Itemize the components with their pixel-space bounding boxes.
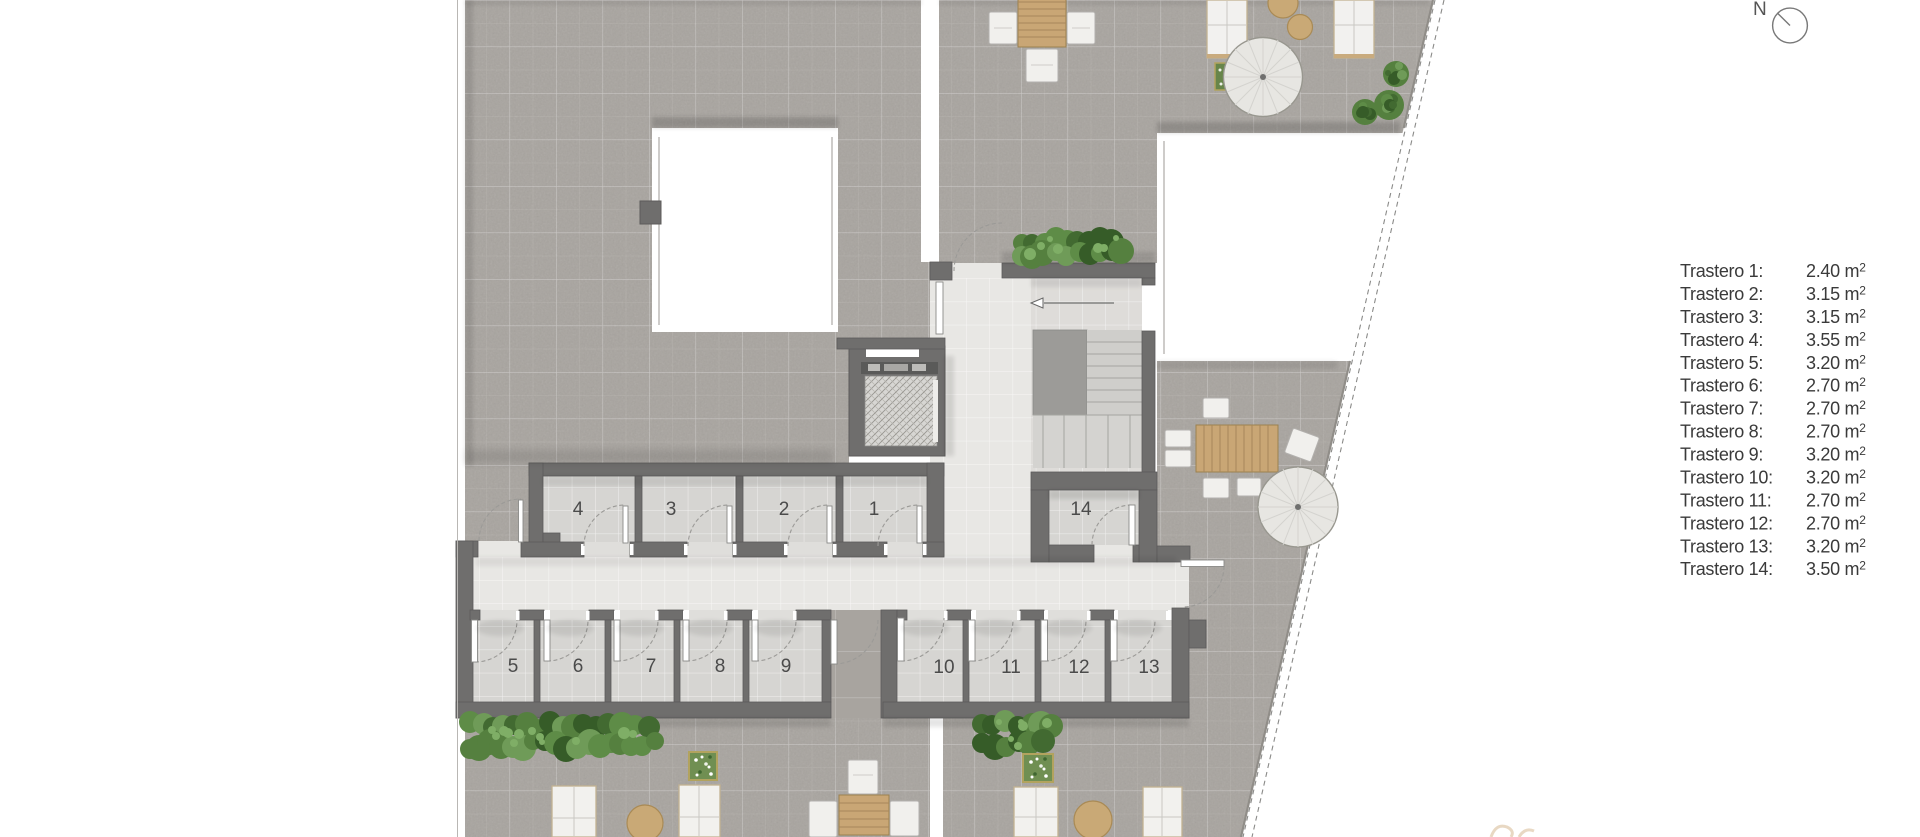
svg-text:2.40 m2: 2.40 m2 — [1806, 261, 1866, 282]
svg-text:12: 12 — [1068, 657, 1089, 678]
svg-text:Trastero 7:: Trastero 7: — [1680, 399, 1763, 419]
svg-text:7: 7 — [646, 656, 657, 677]
svg-text:5: 5 — [508, 656, 519, 677]
svg-text:Trastero 3:: Trastero 3: — [1680, 307, 1763, 327]
svg-text:3.20 m2: 3.20 m2 — [1806, 467, 1866, 488]
svg-text:3.15 m2: 3.15 m2 — [1806, 283, 1866, 304]
svg-text:2.70 m2: 2.70 m2 — [1806, 421, 1866, 442]
svg-text:Trastero 8:: Trastero 8: — [1680, 422, 1763, 442]
svg-text:Trastero 12:: Trastero 12: — [1680, 513, 1773, 533]
svg-text:N: N — [1753, 0, 1767, 20]
svg-text:Trastero 5:: Trastero 5: — [1680, 353, 1763, 373]
svg-text:3.50 m2: 3.50 m2 — [1806, 559, 1866, 580]
svg-text:3.20 m2: 3.20 m2 — [1806, 444, 1866, 465]
svg-text:Trastero 6:: Trastero 6: — [1680, 376, 1763, 396]
svg-text:3.15 m2: 3.15 m2 — [1806, 306, 1866, 327]
svg-text:1: 1 — [869, 499, 880, 520]
svg-text:Trastero 13:: Trastero 13: — [1680, 536, 1773, 556]
svg-text:3.20 m2: 3.20 m2 — [1806, 536, 1866, 557]
svg-text:Trastero 9:: Trastero 9: — [1680, 445, 1763, 465]
svg-text:11: 11 — [1001, 657, 1021, 678]
svg-text:2: 2 — [779, 499, 790, 520]
svg-text:Trastero 4:: Trastero 4: — [1680, 330, 1763, 350]
svg-text:3.55 m2: 3.55 m2 — [1806, 329, 1866, 350]
svg-text:2.70 m2: 2.70 m2 — [1806, 513, 1866, 534]
svg-text:2.70 m2: 2.70 m2 — [1806, 398, 1866, 419]
svg-text:6: 6 — [573, 656, 584, 677]
svg-text:9: 9 — [781, 656, 792, 677]
svg-text:Trastero 11:: Trastero 11: — [1680, 490, 1771, 510]
svg-text:2.70 m2: 2.70 m2 — [1806, 490, 1866, 511]
svg-text:2.70 m2: 2.70 m2 — [1806, 375, 1866, 396]
svg-text:10: 10 — [933, 657, 954, 678]
svg-text:Trastero 2:: Trastero 2: — [1680, 284, 1763, 304]
svg-text:3: 3 — [666, 499, 677, 520]
svg-text:Trastero 10:: Trastero 10: — [1680, 468, 1773, 488]
svg-text:8: 8 — [715, 656, 726, 677]
svg-text:Trastero 1:: Trastero 1: — [1680, 261, 1763, 281]
svg-text:Trastero 14:: Trastero 14: — [1680, 559, 1773, 579]
svg-text:3.20 m2: 3.20 m2 — [1806, 352, 1866, 373]
svg-text:14: 14 — [1070, 499, 1092, 520]
svg-text:4: 4 — [573, 499, 584, 520]
svg-text:13: 13 — [1138, 657, 1159, 678]
